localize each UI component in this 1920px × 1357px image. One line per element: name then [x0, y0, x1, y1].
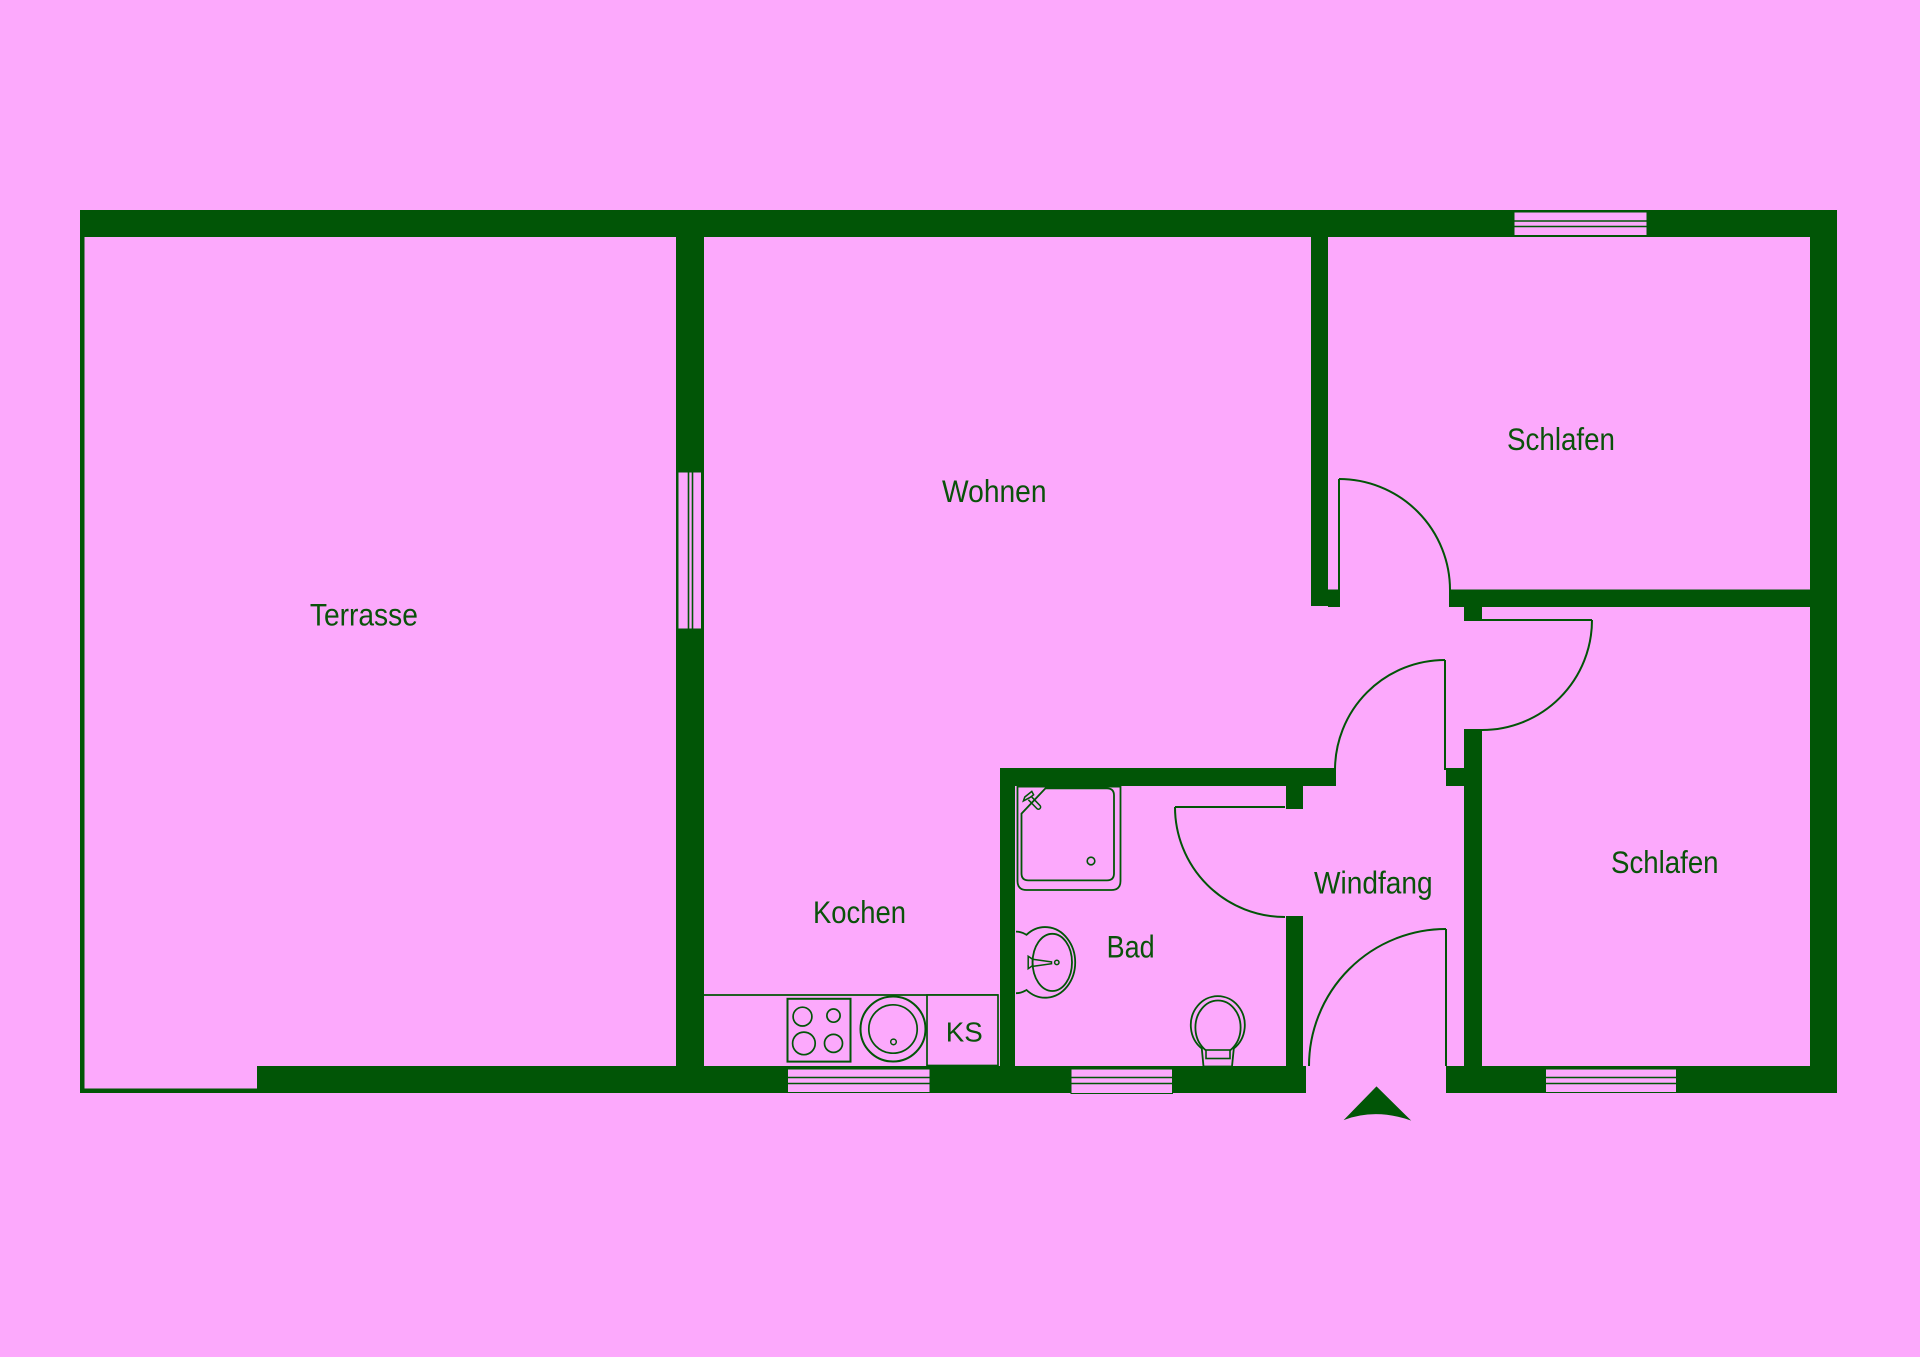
- svg-text:Wohnen: Wohnen: [942, 473, 1047, 509]
- svg-text:Windfang: Windfang: [1314, 865, 1433, 901]
- svg-text:Schlafen: Schlafen: [1507, 421, 1615, 457]
- svg-text:Kochen: Kochen: [813, 894, 906, 930]
- svg-text:KS: KS: [946, 1017, 983, 1048]
- svg-text:Schlafen: Schlafen: [1611, 844, 1719, 880]
- svg-text:Terrasse: Terrasse: [310, 597, 418, 633]
- svg-text:Bad: Bad: [1107, 929, 1155, 965]
